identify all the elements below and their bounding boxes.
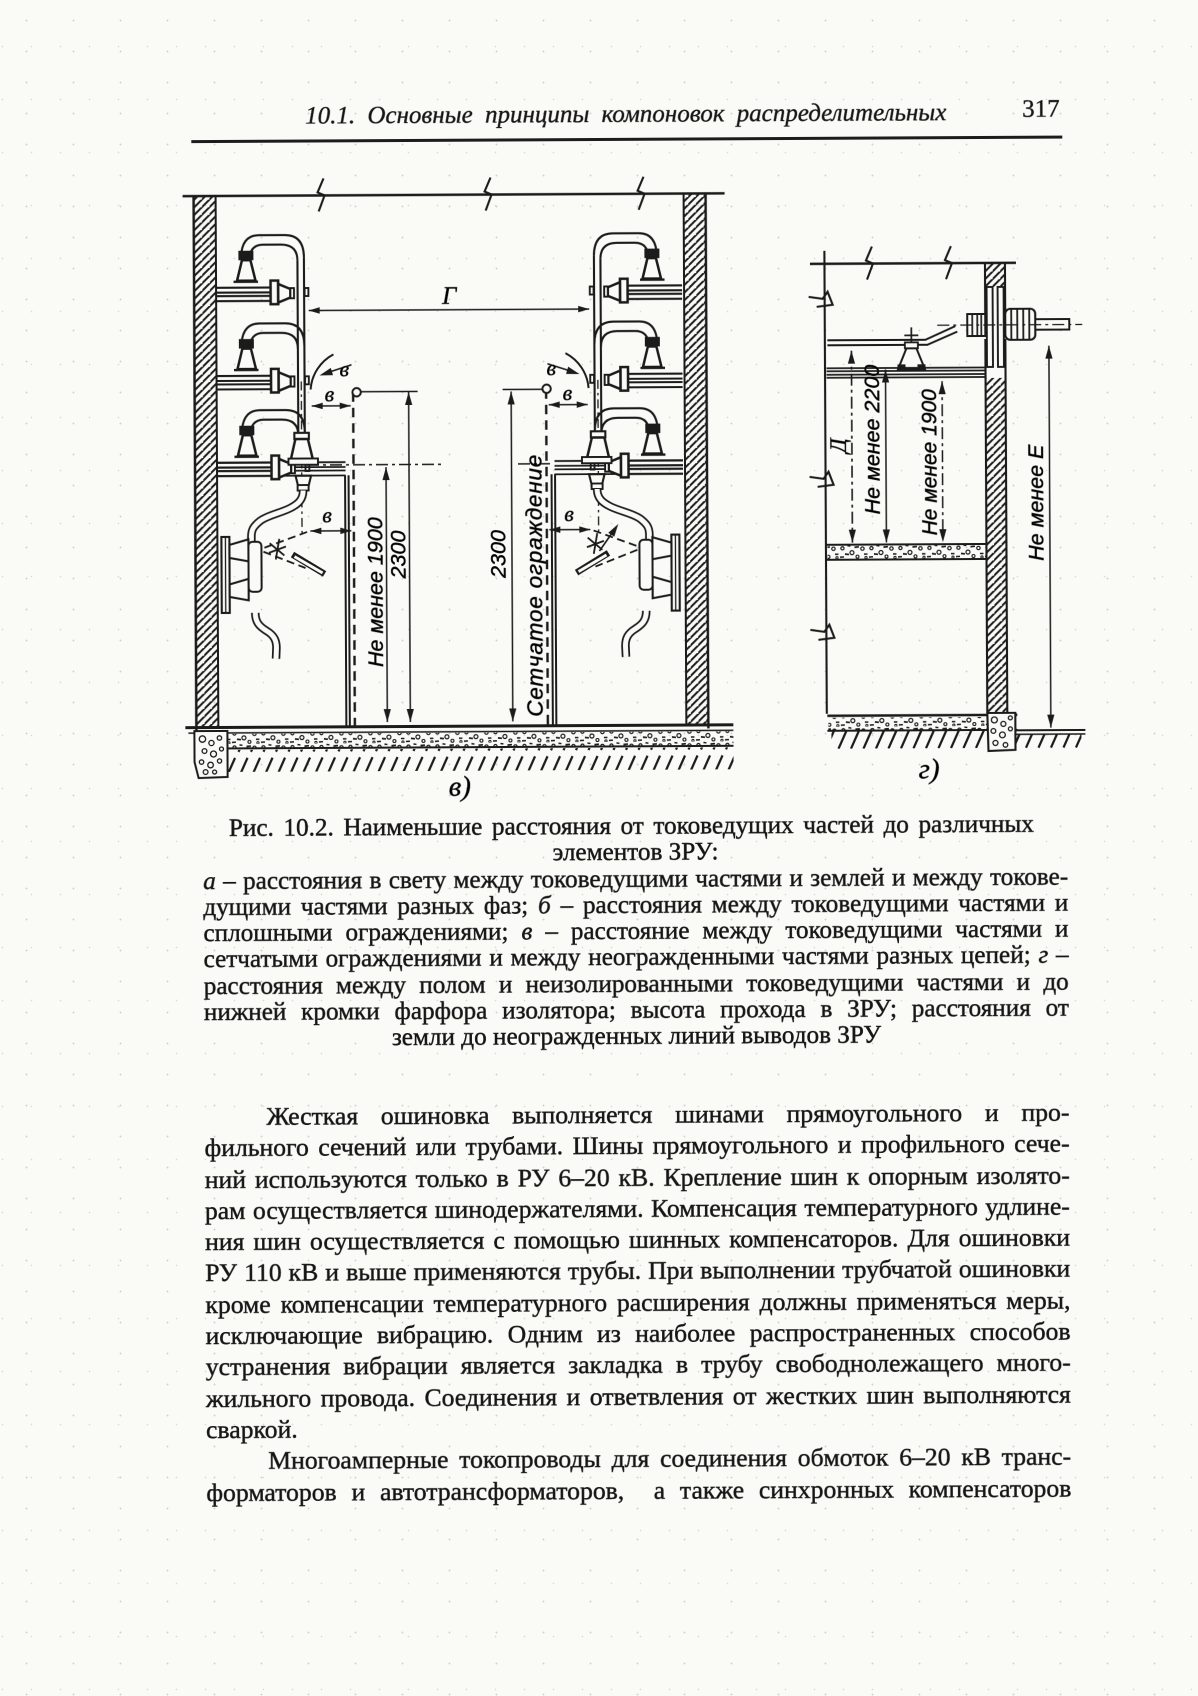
svg-text:Д: Д bbox=[826, 437, 851, 455]
svg-text:Не менее 2200: Не менее 2200 bbox=[860, 365, 885, 515]
svg-text:в): в) bbox=[449, 771, 471, 803]
svg-text:в: в bbox=[546, 355, 556, 380]
svg-text:Г: Г bbox=[441, 283, 458, 310]
svg-text:г): г) bbox=[919, 753, 940, 785]
svg-text:2300: 2300 bbox=[486, 530, 510, 579]
svg-text:в: в bbox=[563, 380, 573, 405]
svg-text:Не менее Е: Не менее Е bbox=[1024, 444, 1049, 561]
svg-text:в: в bbox=[339, 356, 349, 381]
svg-text:Не менее 1900: Не менее 1900 bbox=[918, 389, 942, 536]
svg-text:2300: 2300 bbox=[386, 531, 410, 580]
svg-text:в: в bbox=[325, 381, 335, 406]
svg-text:в: в bbox=[322, 502, 332, 527]
svg-text:Сетчатое ограждение: Сетчатое ограждение bbox=[521, 454, 547, 717]
svg-text:Не менее 1900: Не менее 1900 bbox=[363, 517, 388, 667]
svg-text:в: в bbox=[564, 501, 574, 526]
